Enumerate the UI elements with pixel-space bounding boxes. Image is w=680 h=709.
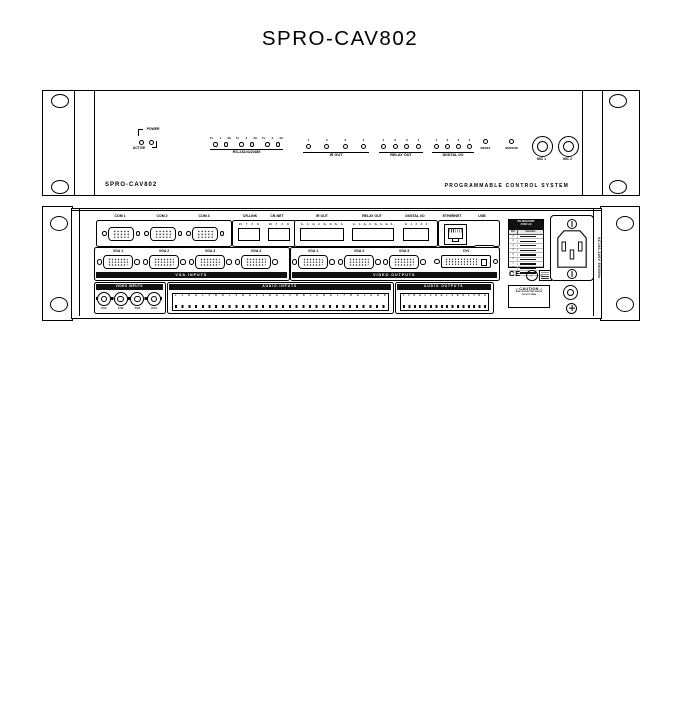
- pin-label: L: [337, 295, 338, 297]
- pin-label: 2+: [312, 224, 315, 226]
- relay-out-label: RELAY OUT: [390, 154, 412, 158]
- pin-label: G: [441, 295, 443, 297]
- led-number: 4: [363, 139, 365, 142]
- vga-output-3[interactable]: [389, 255, 419, 269]
- audio-inputs-box: AUDIO INPUTS L1RGL2RGL3RGL4RGL5RGL6RGL7R…: [167, 282, 394, 314]
- pin-function: [518, 259, 543, 260]
- vga-out3-label: VGA 3: [399, 250, 409, 254]
- vga-inputs-strip: VGA INPUTS: [96, 272, 287, 279]
- pin-label: R: [242, 295, 244, 297]
- led-indicator: 4: [361, 139, 366, 149]
- device-diagram: SPRO-CAV802 POWER ACTIVE Tx 1 Rx: [0, 0, 680, 709]
- screw: [235, 259, 241, 265]
- cr-link-terminal[interactable]: [238, 228, 260, 241]
- led-number: 3: [344, 139, 346, 142]
- pin-label: 1+: [301, 224, 304, 226]
- screw: [338, 259, 344, 265]
- vga-input-4[interactable]: [241, 255, 271, 269]
- pin-label: R: [323, 295, 325, 297]
- rx-led: [224, 142, 229, 147]
- pin-function: [518, 263, 543, 264]
- digital-io-terminal[interactable]: [403, 228, 429, 241]
- led-indicator: 2: [324, 139, 329, 149]
- bnc-channel-label: CV2: [118, 307, 123, 310]
- com3-connector[interactable]: [192, 227, 218, 241]
- screw: [97, 259, 103, 265]
- rack-mount-hole: [609, 180, 627, 194]
- pin-number: 1: [509, 236, 518, 238]
- led-number: 3: [458, 139, 460, 142]
- serial-led-cluster: Tx 1 Rx Tx 2 Rx: [210, 138, 283, 155]
- pin-label: R: [350, 295, 352, 297]
- cr-link-group: 24YZG: [236, 224, 262, 241]
- led-indicator: 4: [416, 139, 421, 149]
- pin-label: Y: [246, 224, 248, 226]
- control-io-box: 1+1-2+2-3+3-4+4- 1+1-2+2-3+3-4+4- G1234: [294, 220, 438, 247]
- pin-label: L: [202, 295, 203, 297]
- mic2-label: MIC 2: [557, 158, 578, 161]
- ir-led: [306, 144, 311, 149]
- com2-label: COM 2: [140, 215, 184, 219]
- panel-fold-line: [94, 91, 95, 195]
- bnc-connector[interactable]: [97, 292, 111, 306]
- rack-mount-hole: [50, 297, 68, 312]
- screw: [329, 259, 335, 265]
- screw: [180, 259, 186, 265]
- screw: [220, 231, 225, 236]
- tx-label: Tx: [236, 138, 239, 141]
- screw: [143, 259, 149, 265]
- screw: [383, 259, 389, 265]
- digital-io-label: DIGITAL I/O: [443, 154, 464, 158]
- serial-led-pair: Tx 3 Rx: [262, 138, 283, 147]
- panel-fold-line: [582, 91, 583, 195]
- pin-label: L: [364, 295, 365, 297]
- tx-led: [265, 142, 270, 147]
- pin-label: 3: [452, 295, 453, 297]
- led-indicator: 3: [404, 139, 409, 149]
- ground-terminal: [563, 285, 578, 300]
- rack-mount-hole: [50, 216, 68, 231]
- pin-label: R: [435, 295, 437, 297]
- screw: [144, 231, 149, 236]
- pin-number: 3: [509, 245, 518, 247]
- relay-led: [381, 144, 386, 149]
- screw: [102, 231, 107, 236]
- pin-label: G: [287, 224, 289, 226]
- screw: [186, 231, 191, 236]
- pin-label: 3: [236, 295, 237, 297]
- pin-label: 1+: [353, 224, 356, 226]
- digital-led: [434, 144, 439, 149]
- power-rating-text: AC100-240V 50/60Hz: [593, 219, 600, 297]
- screw: [434, 259, 440, 265]
- mic2-jack[interactable]: [558, 136, 579, 157]
- ir-out-terminal[interactable]: [300, 228, 344, 241]
- pin-label: G: [405, 224, 407, 226]
- led-number: 3: [406, 139, 408, 142]
- bnc-group: CV3: [130, 292, 144, 310]
- pin-number: 4: [509, 249, 518, 251]
- com1-group: [99, 227, 143, 241]
- rx-label: Rx: [280, 138, 283, 141]
- pin-label: 1: [182, 295, 183, 297]
- vga-inputs-box: VGA 1 VGA 2 VGA 3 VGA 4 VGA INPUTS: [94, 247, 290, 281]
- pin-label: R: [296, 295, 298, 297]
- pinout-title-line2: (COM 1-3): [509, 224, 543, 227]
- vga-input-1[interactable]: [103, 255, 133, 269]
- led-number: 4: [469, 139, 471, 142]
- pinout-table: RS-232/422/485 (COM 1-3) Pin Function 1 …: [508, 219, 544, 268]
- serial-led-pair: Tx 2 Rx: [236, 138, 257, 147]
- screw: [292, 259, 298, 265]
- rear-panel: COM 1 COM 2 COM 3 CR-LINK CR-NET IR OUT …: [42, 205, 638, 320]
- tx-led: [239, 142, 244, 147]
- led-indicator: 2: [445, 139, 450, 149]
- pin-label: 5: [290, 295, 291, 297]
- cr-net-group: 24YZG: [266, 224, 292, 241]
- relay-out-group: 1+1-2+2-3+3-4+4-: [351, 224, 395, 241]
- audio-inputs-strip: AUDIO INPUTS: [169, 284, 391, 290]
- relay-out-label: RELAY OUT: [350, 215, 394, 219]
- pin-label: 4-: [391, 224, 393, 226]
- led-number: 1: [383, 139, 385, 142]
- pin-label: R: [188, 295, 190, 297]
- bnc-channel-label: CV4: [151, 307, 156, 310]
- pin-label: 2-: [369, 224, 371, 226]
- pin-label: 4+: [385, 224, 388, 226]
- vga-in1-label: VGA 1: [113, 250, 123, 254]
- screw: [136, 231, 141, 236]
- pin-number: 5: [509, 254, 518, 256]
- pin-label: 4-: [341, 224, 343, 226]
- dvi-label: DVI: [463, 250, 469, 254]
- relay-led-cluster: 1 2 3 4 RELAY OUT: [379, 139, 423, 157]
- rx-label: Rx: [254, 138, 257, 141]
- relay-led: [393, 144, 398, 149]
- led-indicator: 1: [306, 139, 311, 149]
- led-indicator: 3: [456, 139, 461, 149]
- pin-label: 2+: [364, 224, 367, 226]
- serial-group-label: RS-232/422/485: [233, 151, 261, 155]
- port-number: 3: [272, 138, 273, 141]
- pin-label: R: [215, 295, 217, 297]
- pin-label: L: [403, 295, 404, 297]
- vga-output-1[interactable]: [298, 255, 328, 269]
- ir-out-group: 1+1-2+2-3+3-4+4-: [299, 224, 345, 241]
- pin-label: G: [419, 295, 421, 297]
- chassis-screw: [566, 303, 577, 314]
- rack-mount-hole: [616, 297, 634, 312]
- panel-fold-line: [74, 91, 75, 195]
- pin-column-header: Pin: [509, 230, 518, 234]
- pin-function: [518, 250, 543, 251]
- pin-label: R: [377, 295, 379, 297]
- com1-label: COM 1: [98, 215, 142, 219]
- screw: [189, 259, 195, 265]
- cr-bus-box: 24YZG 24YZG: [232, 220, 296, 247]
- usb-label: USB: [460, 215, 504, 219]
- active-led-label: ACTIVE: [127, 147, 151, 150]
- rack-mount-hole: [616, 216, 634, 231]
- pin-label: 3-: [380, 224, 382, 226]
- pin-label: R: [413, 295, 415, 297]
- caution-line2: DO NOT OPEN: [509, 294, 549, 297]
- pin-label: G: [462, 295, 464, 297]
- video-inputs-box: VIDEO INPUTS CV1 CV2 CV3 CV4: [94, 282, 166, 314]
- rack-mount-hole: [51, 94, 69, 108]
- video-outputs-box: VGA 1 VGA 2 VGA 3 DVI VIDEO OUTPUTS: [290, 247, 500, 281]
- audio-outputs-box: AUDIO OUTPUTS L1RGL2RGL3RGL4RG: [395, 282, 494, 314]
- pin-label: 6: [317, 295, 318, 297]
- pinout-table-header: RS-232/422/485 (COM 1-3): [509, 220, 543, 230]
- screw: [134, 259, 140, 265]
- led-number: 2: [447, 139, 449, 142]
- pin-label: L: [468, 295, 469, 297]
- tx-led: [213, 142, 218, 147]
- pin-label: 2-: [318, 224, 320, 226]
- led-number: 4: [418, 139, 420, 142]
- caution-label: ⚠ CAUTION ⚠ RISK OF ELECTRIC SHOCK DO NO…: [508, 285, 550, 308]
- video-inputs-strip: VIDEO INPUTS: [96, 284, 163, 290]
- pin-label: R: [478, 295, 480, 297]
- cr-net-label: CR-NET: [255, 215, 299, 219]
- tx-label: Tx: [262, 138, 265, 141]
- com2-group: [141, 227, 185, 241]
- relay-led: [404, 144, 409, 149]
- pin-label: 1: [411, 224, 412, 226]
- pin-label: L: [425, 295, 426, 297]
- led-indicator: 3: [343, 139, 348, 149]
- screw: [420, 259, 426, 265]
- audio-outputs-terminal[interactable]: L1RGL2RGL3RGL4RG: [400, 293, 489, 312]
- pin-label: L: [310, 295, 311, 297]
- ir-out-label: IR OUT: [300, 215, 344, 219]
- pin-label: G: [484, 295, 486, 297]
- digital-led: [445, 144, 450, 149]
- function-column-header: Function: [518, 230, 543, 234]
- pin-label: 3-: [330, 224, 332, 226]
- relay-out-terminal[interactable]: [352, 228, 394, 241]
- page-title: SPRO-CAV802: [0, 27, 680, 51]
- relay-led: [416, 144, 421, 149]
- bnc-group: CV4: [147, 292, 161, 310]
- rack-mount-hole: [609, 94, 627, 108]
- screw: [567, 269, 577, 279]
- ir-led: [343, 144, 348, 149]
- vga-input-2[interactable]: [149, 255, 179, 269]
- pin-label: G: [330, 295, 332, 297]
- iec-c14-socket: [557, 230, 587, 268]
- pin-label: 1-: [307, 224, 309, 226]
- com2-connector[interactable]: [150, 227, 176, 241]
- cr-net-terminal[interactable]: [268, 228, 290, 241]
- bnc-group: CV1: [97, 292, 111, 310]
- pin-label: G: [384, 295, 386, 297]
- ir-out-led-cluster: 1 2 3 4 IR OUT: [303, 139, 369, 157]
- video-outputs-strip: VIDEO OUTPUTS: [292, 272, 497, 279]
- pin-label: 2: [209, 295, 210, 297]
- pin-label: G: [249, 295, 251, 297]
- pin-number: 7: [509, 263, 518, 265]
- reset-button[interactable]: [483, 139, 488, 144]
- screw: [493, 259, 499, 265]
- led-number: 2: [326, 139, 328, 142]
- pin-label: G: [257, 224, 259, 226]
- pin-label: L: [229, 295, 230, 297]
- pin-label: 3+: [324, 224, 327, 226]
- led-number: 1: [436, 139, 438, 142]
- vga-output-2[interactable]: [344, 255, 374, 269]
- front-tagline-label: PROGRAMMABLE CONTROL SYSTEM: [393, 184, 569, 189]
- pin-label: G: [276, 295, 278, 297]
- pin-label: Z: [252, 224, 253, 226]
- bnc-channel-label: CV3: [135, 307, 140, 310]
- bnc-connector[interactable]: [130, 292, 144, 306]
- tx-label: Tx: [210, 138, 213, 141]
- screw: [178, 231, 183, 236]
- pin-label: Y: [276, 224, 278, 226]
- audio-inputs-terminal[interactable]: L1RGL2RGL3RGL4RGL5RGL6RGL7RGL8RG: [172, 293, 389, 312]
- vga-in2-label: VGA 2: [159, 250, 169, 254]
- serial-led-pair: Tx 1 Rx: [210, 138, 231, 147]
- pin-label: 3+: [374, 224, 377, 226]
- pin-label: 1: [408, 295, 409, 297]
- power-led: [139, 140, 144, 145]
- vga-out1-label: VGA 1: [308, 250, 318, 254]
- pin-label: 4: [426, 224, 427, 226]
- com-ports-box: [96, 220, 232, 247]
- ir-led: [361, 144, 366, 149]
- screw: [567, 219, 577, 229]
- port-number: 1: [220, 138, 221, 141]
- ir-led: [324, 144, 329, 149]
- pin-label: Z: [282, 224, 283, 226]
- power-led-label: POWER: [142, 128, 164, 131]
- digital-io-group: G1234: [400, 224, 432, 241]
- pin-label: G: [303, 295, 305, 297]
- led-indicator: 1: [434, 139, 439, 149]
- pin-label: 2: [416, 224, 417, 226]
- pin-function: [518, 241, 543, 242]
- pin-label: R: [269, 295, 271, 297]
- led-number: 1: [308, 139, 310, 142]
- pin-label: G: [357, 295, 359, 297]
- pin-label: 24: [269, 224, 272, 226]
- pin-label: 4+: [335, 224, 338, 226]
- pin-label: 3: [421, 224, 422, 226]
- pin-number: 6: [509, 258, 518, 260]
- audio-outputs-strip: AUDIO OUTPUTS: [397, 284, 491, 290]
- bnc-channel-label: CV1: [101, 307, 106, 310]
- screw: [226, 259, 232, 265]
- pin-function: [518, 236, 543, 237]
- panel-fold-line: [602, 91, 603, 195]
- pin-label: L: [256, 295, 257, 297]
- port-number: 2: [246, 138, 247, 141]
- pin-label: G: [222, 295, 224, 297]
- dvi-output[interactable]: [441, 255, 491, 268]
- bnc-connector[interactable]: [147, 292, 161, 306]
- vga-in4-label: VGA 4: [251, 250, 261, 254]
- ir-out-label: IR OUT: [330, 154, 343, 158]
- vga-input-3[interactable]: [195, 255, 225, 269]
- bnc-group: CV2: [114, 292, 128, 310]
- digital-io-led-cluster: 1 2 3 4 DIGITAL I/O: [432, 139, 474, 157]
- vga-out2-label: VGA 2: [354, 250, 364, 254]
- com3-group: [183, 227, 227, 241]
- digital-led: [456, 144, 461, 149]
- vga-in3-label: VGA 3: [205, 250, 215, 254]
- rack-mount-hole: [51, 180, 69, 194]
- pin-label: 4: [263, 295, 264, 297]
- ethernet-port[interactable]: [444, 224, 467, 245]
- pin-label: L: [283, 295, 284, 297]
- pin-label: G: [195, 295, 197, 297]
- front-panel: POWER ACTIVE Tx 1 Rx: [42, 90, 640, 196]
- terminal-pins: [403, 305, 486, 308]
- com3-label: COM 3: [182, 215, 226, 219]
- sensor-label: SENSOR: [495, 147, 528, 150]
- screw: [272, 259, 278, 265]
- network-box: [438, 220, 500, 247]
- rx-led: [276, 142, 281, 147]
- certification-circle-mark: [526, 270, 538, 282]
- pin-label: 8: [371, 295, 372, 297]
- pin-function: [518, 245, 543, 246]
- led-indicator: 2: [393, 139, 398, 149]
- pin-label: 1-: [359, 224, 361, 226]
- sensor-window: [509, 139, 514, 144]
- pin-label: 7: [344, 295, 345, 297]
- ce-mark: CE: [509, 270, 521, 278]
- pin-function: [518, 254, 543, 255]
- screw: [375, 259, 381, 265]
- com1-connector[interactable]: [108, 227, 134, 241]
- pin-label: R: [457, 295, 459, 297]
- bnc-connector[interactable]: [114, 292, 128, 306]
- front-model-label: SPRO-CAV802: [105, 182, 157, 188]
- pin-label: 2: [430, 295, 431, 297]
- led-indicator: 1: [381, 139, 386, 149]
- rx-label: Rx: [228, 138, 231, 141]
- pin-label: L: [175, 295, 176, 297]
- mic1-jack[interactable]: [532, 136, 553, 157]
- pin-label: 24: [239, 224, 242, 226]
- ac-power-inlet[interactable]: [550, 215, 594, 281]
- terminal-pins: [175, 305, 386, 308]
- rx-led: [250, 142, 255, 147]
- mic1-label: MIC 1: [531, 158, 552, 161]
- pin-label: 4: [473, 295, 474, 297]
- pin-number: 2: [509, 240, 518, 242]
- led-number: 2: [394, 139, 396, 142]
- pin-label: L: [446, 295, 447, 297]
- chassis-fold-line: [79, 209, 80, 316]
- bracket-mark: [152, 141, 157, 148]
